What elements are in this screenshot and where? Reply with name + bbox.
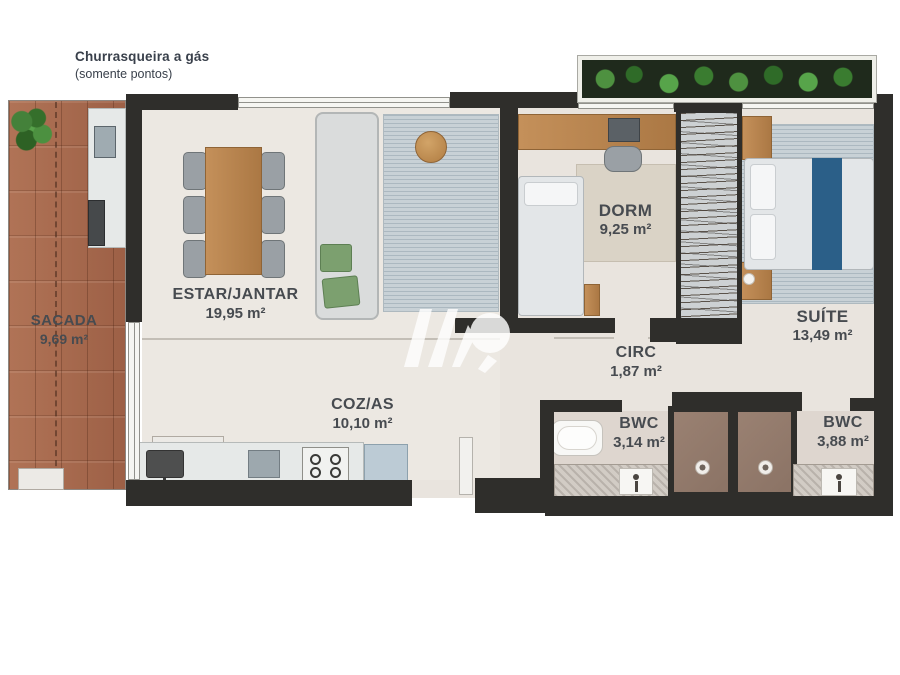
- bed-runner: [812, 158, 842, 270]
- kitchen-cabinet: [248, 450, 280, 478]
- shower-person-icon: [635, 481, 638, 492]
- shower-stall: [736, 410, 793, 494]
- window-living: [238, 97, 450, 108]
- room-area: 3,88 m²: [788, 433, 898, 452]
- wall-living-dorm: [500, 94, 518, 326]
- room-name: COZ/AS: [300, 395, 425, 415]
- sofa-cushion: [320, 244, 352, 272]
- sofa-cushion: [322, 275, 361, 309]
- wall-bottom-right: [545, 496, 893, 516]
- lamp-icon: [743, 273, 755, 285]
- room-area: 3,14 m²: [578, 434, 700, 453]
- projection-line: [554, 337, 614, 339]
- room-label-dorm: DORM 9,25 m²: [563, 200, 688, 240]
- room-name: CIRC: [575, 343, 697, 363]
- room-label-sacada: SACADA 9,69 m²: [14, 312, 114, 348]
- balcony-sliding-door: [128, 322, 140, 480]
- coffee-table: [415, 131, 447, 163]
- pillow: [750, 164, 776, 210]
- planter-box: [578, 56, 876, 102]
- room-label-cozas: COZ/AS 10,10 m²: [300, 395, 425, 434]
- balcony-bench: [88, 200, 105, 246]
- plant-icon: [8, 104, 54, 154]
- dorm-nightstand: [584, 284, 600, 316]
- stove-icon: [302, 447, 349, 481]
- dining-chair: [261, 152, 285, 190]
- desk-monitor-icon: [608, 118, 640, 142]
- room-name: SACADA: [14, 312, 114, 331]
- room-name: ESTAR/JANTAR: [148, 285, 323, 305]
- entry-door-leaf: [459, 437, 473, 495]
- desk-chair: [604, 146, 642, 172]
- wall-wardrobe-bottom: [650, 318, 742, 342]
- room-area: 13,49 m²: [760, 327, 885, 346]
- wall-bottom-left: [126, 480, 412, 506]
- barbecue-annotation: Churrasqueira a gás (somente pontos): [75, 48, 209, 82]
- drain-icon: [695, 460, 710, 475]
- room-label-suite: SUÍTE 13,49 m²: [760, 306, 885, 346]
- shower-person-icon: [633, 474, 639, 480]
- laundry-tank: [364, 444, 408, 484]
- room-name: SUÍTE: [760, 306, 885, 327]
- dining-chair: [261, 196, 285, 234]
- wall-balcony: [126, 94, 142, 322]
- deck-projection-line: [55, 102, 57, 486]
- room-label-circ: CIRC 1,87 m²: [575, 343, 697, 382]
- shower-icon: [619, 468, 653, 495]
- suite-nightstand-top: [742, 116, 772, 160]
- annotation-line2: (somente pontos): [75, 66, 209, 82]
- dining-chair: [183, 152, 207, 190]
- burner-icon: [330, 467, 341, 478]
- shower-person-icon: [836, 474, 842, 480]
- wardrobe-hangers-icon: [681, 113, 737, 339]
- shower-icon: [821, 468, 857, 496]
- drain-icon: [758, 460, 773, 475]
- room-label-bwc1: BWC 3,14 m²: [578, 414, 700, 453]
- dorm-desk: [518, 114, 676, 150]
- room-area: 9,69 m²: [14, 331, 114, 349]
- wall-suite-bwc: [672, 392, 802, 411]
- shower-person-icon: [838, 481, 841, 492]
- wall-suite-bwc-2: [850, 398, 874, 411]
- wall-right: [874, 94, 893, 516]
- barbecue-grill-icon: [94, 126, 116, 158]
- shower-area-bwc1: [554, 464, 672, 497]
- dining-chair: [183, 196, 207, 234]
- room-area: 1,87 m²: [575, 363, 697, 382]
- balcony-step: [18, 468, 64, 490]
- pillow: [750, 214, 776, 260]
- wall-bwc1-top: [545, 400, 622, 412]
- kitchen-sink-icon: [146, 450, 184, 478]
- dining-chair: [183, 240, 207, 278]
- room-name: BWC: [578, 414, 700, 434]
- room-label-bwc2: BWC 3,88 m²: [788, 413, 898, 452]
- watermark-logo: [398, 303, 513, 375]
- watermark-svg: [398, 303, 513, 375]
- room-area: 10,10 m²: [300, 415, 425, 434]
- room-name: BWC: [788, 413, 898, 433]
- burner-icon: [330, 454, 341, 465]
- room-area: 9,25 m²: [563, 221, 688, 240]
- wall-entry-chunk: [475, 478, 545, 513]
- burner-icon: [310, 467, 321, 478]
- annotation-line1: Churrasqueira a gás: [75, 48, 209, 66]
- room-area: 19,95 m²: [148, 305, 323, 324]
- room-name: DORM: [563, 200, 688, 221]
- wall-top-left: [126, 94, 238, 110]
- shower-area-bwc2: [793, 464, 874, 498]
- room-label-estar: ESTAR/JANTAR 19,95 m²: [148, 285, 323, 324]
- burner-icon: [310, 454, 321, 465]
- dining-chair: [261, 240, 285, 278]
- dining-table: [205, 147, 262, 275]
- floor-plan: Churrasqueira a gás (somente pontos) SAC…: [0, 0, 900, 675]
